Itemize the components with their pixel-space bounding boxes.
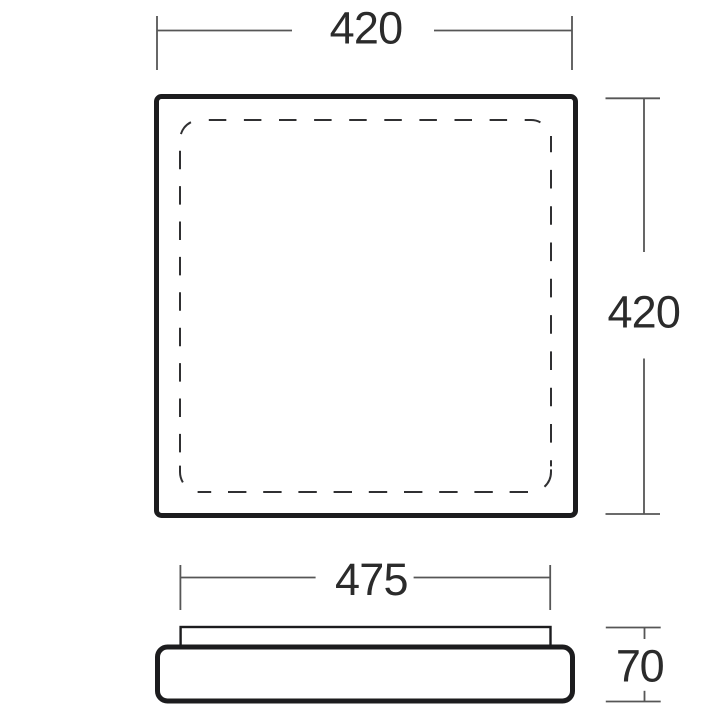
svg-text:475: 475 [335,554,408,605]
svg-text:420: 420 [607,287,680,338]
svg-text:70: 70 [616,640,664,691]
svg-text:420: 420 [330,3,403,54]
